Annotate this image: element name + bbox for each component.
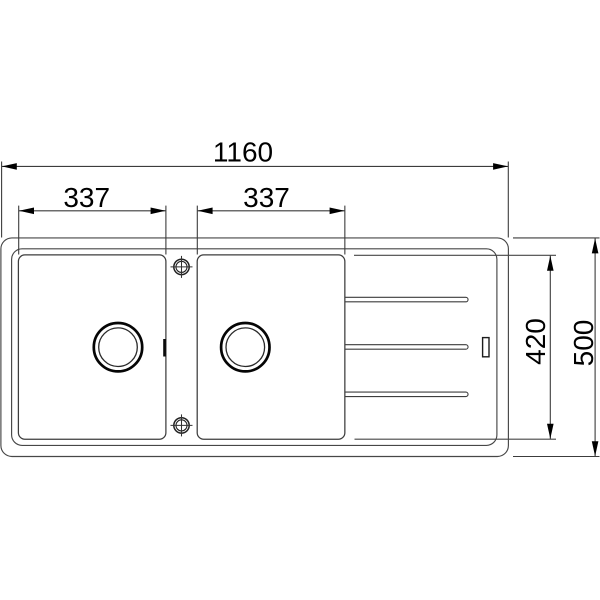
- svg-text:1160: 1160: [213, 137, 273, 168]
- svg-text:337: 337: [243, 182, 290, 213]
- svg-text:500: 500: [568, 320, 599, 367]
- svg-text:337: 337: [63, 182, 110, 213]
- svg-text:420: 420: [520, 318, 551, 365]
